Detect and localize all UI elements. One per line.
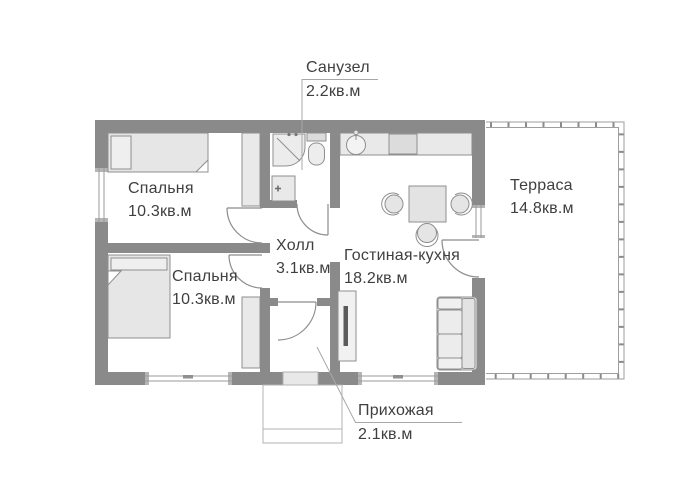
room-label-bedroom-top: Спальня 10.3кв.м — [128, 177, 194, 223]
wall-bottom-2 — [232, 372, 283, 385]
terrace-railing-inner — [486, 128, 619, 374]
window-handle — [183, 375, 193, 379]
stove — [389, 134, 417, 154]
sofa-cushion — [438, 334, 462, 358]
window-handle — [393, 375, 403, 379]
porch — [263, 385, 342, 443]
shower — [273, 133, 305, 166]
wall-hall-entry-right — [317, 298, 340, 306]
pillow — [111, 258, 167, 270]
wall-left-upper — [95, 120, 108, 168]
chair-right — [451, 193, 472, 215]
toilet — [307, 133, 326, 165]
tv-stand — [338, 291, 356, 361]
sofa-armrest — [438, 298, 462, 309]
room-area: 2.2кв.м — [306, 80, 370, 104]
room-name: Санузел — [306, 56, 370, 80]
sofa — [437, 297, 477, 370]
window-bedroom-top-left-wall — [95, 168, 108, 222]
room-area: 2.1кв.м — [358, 423, 434, 447]
room-label-living-kitchen: Гостиная-кухня 18.2кв.м — [344, 244, 460, 290]
room-name: Гостиная-кухня — [344, 244, 460, 267]
sofa-armrest — [438, 358, 462, 369]
window-living-room — [358, 372, 438, 385]
wall-hall-entry-left — [260, 298, 278, 306]
wall-between-bedrooms — [95, 243, 270, 253]
bed-bedroom-bottom — [108, 255, 170, 338]
floor-plan: Спальня 10.3кв.м Спальня 10.3кв.м Холл 3… — [0, 0, 700, 502]
door-bedroom-top — [227, 208, 262, 243]
pillow — [111, 136, 131, 169]
wall-bathroom-living — [330, 120, 340, 207]
room-name: Спальня — [128, 177, 194, 200]
room-area: 18.2кв.м — [344, 267, 460, 290]
room-area: 3.1кв.м — [276, 257, 331, 280]
washing-machine — [272, 176, 295, 201]
room-name: Холл — [276, 234, 331, 257]
wall-right-upper — [472, 120, 485, 205]
wardrobe-bedroom-bottom — [242, 297, 260, 368]
door-hall-entry — [278, 302, 316, 340]
chair-left — [382, 193, 403, 215]
tv — [344, 306, 349, 346]
terrace-railing — [486, 122, 624, 379]
wardrobe-bedroom-top — [242, 133, 260, 206]
sofa-back — [462, 299, 475, 369]
room-label-terrace: Терраса 14.8кв.м — [510, 174, 574, 220]
room-name: Терраса — [510, 174, 574, 197]
terrace-railing-posts — [490, 125, 621, 377]
room-area: 10.3кв.м — [172, 288, 238, 311]
sofa-cushion — [438, 310, 462, 334]
wall-bottom-4 — [438, 372, 485, 385]
room-label-entry: Прихожая 2.1кв.м — [358, 399, 434, 447]
room-area: 14.8кв.м — [510, 197, 574, 220]
room-label-hall: Холл 3.1кв.м — [276, 234, 331, 280]
room-label-bedroom-bottom: Спальня 10.3кв.м — [172, 265, 238, 311]
wall-top — [95, 120, 485, 133]
room-label-bathroom: Санузел 2.2кв.м — [306, 56, 370, 104]
door-bathroom — [297, 204, 328, 235]
window-bedroom-bottom — [145, 372, 232, 385]
bed-bedroom-top — [108, 133, 208, 172]
wall-bottom-3 — [318, 372, 358, 385]
terrace-railing-outer — [486, 122, 624, 379]
window-living-terrace — [472, 205, 485, 238]
room-area: 10.3кв.м — [128, 200, 194, 223]
dining-table — [409, 186, 446, 222]
room-name: Спальня — [172, 265, 238, 288]
wall-bedrooms-hall-upper — [260, 133, 270, 208]
room-name: Прихожая — [358, 399, 434, 423]
wall-bottom-1 — [95, 372, 145, 385]
